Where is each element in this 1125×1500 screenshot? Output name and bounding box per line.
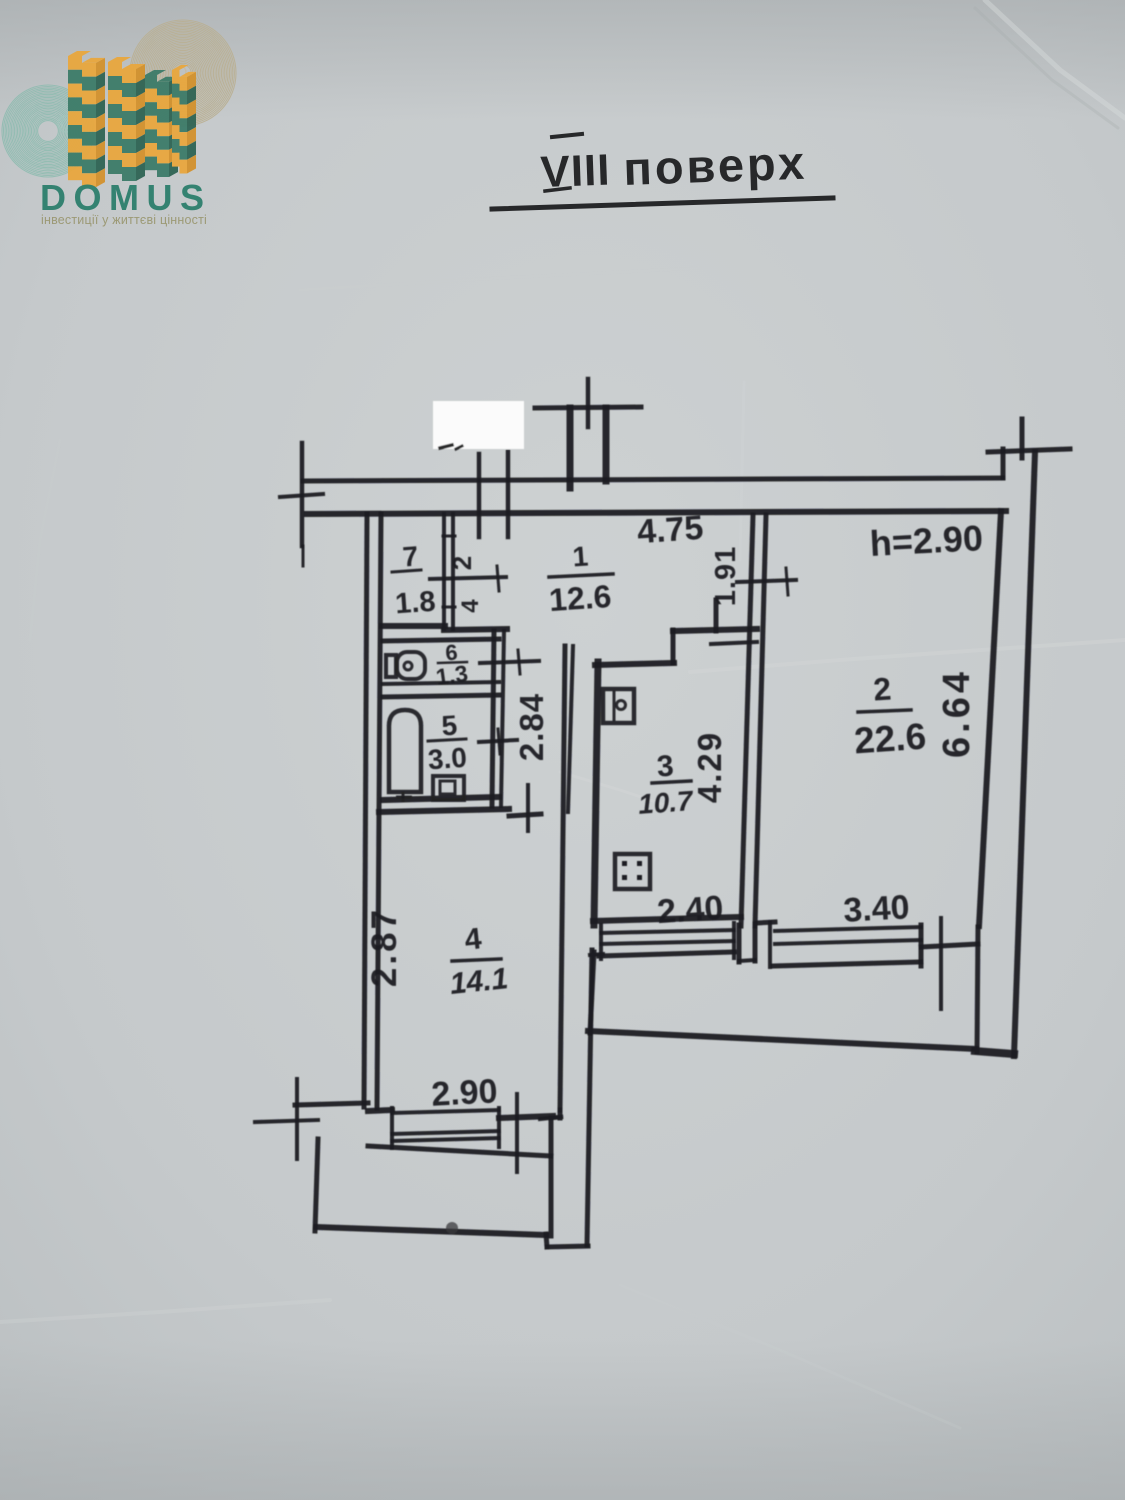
svg-text:6.64: 6.64 [936,668,978,758]
svg-text:поверх: поверх [622,136,807,195]
svg-text:10.7: 10.7 [637,785,695,820]
svg-text:22.6: 22.6 [853,716,928,762]
svg-text:2.40: 2.40 [656,889,725,932]
svg-text:DOMUS: DOMUS [40,177,212,218]
svg-text:2.90: 2.90 [430,1072,498,1113]
svg-text:2.84: 2.84 [513,693,550,761]
svg-text:2.87: 2.87 [365,907,404,987]
svg-text:3.40: 3.40 [842,888,910,929]
svg-text:12.6: 12.6 [548,578,613,618]
svg-text:4: 4 [457,599,484,613]
svg-text:4.29: 4.29 [691,731,728,803]
svg-text:3.0: 3.0 [427,742,468,776]
svg-text:1: 1 [571,541,589,573]
svg-text:3: 3 [656,749,675,783]
svg-text:1.3: 1.3 [434,660,469,690]
svg-text:h=2.90: h=2.90 [869,517,984,564]
svg-text:інвестиції у життєві цінності: інвестиції у життєві цінності [41,213,207,227]
svg-text:4.75: 4.75 [636,509,705,552]
svg-text:14.1: 14.1 [448,962,510,1001]
svg-text:5: 5 [440,710,458,742]
svg-text:7: 7 [401,541,419,573]
svg-text:2: 2 [447,556,477,570]
svg-text:2: 2 [872,670,892,707]
svg-text:1.8: 1.8 [394,586,436,621]
svg-text:1.91: 1.91 [710,546,742,606]
